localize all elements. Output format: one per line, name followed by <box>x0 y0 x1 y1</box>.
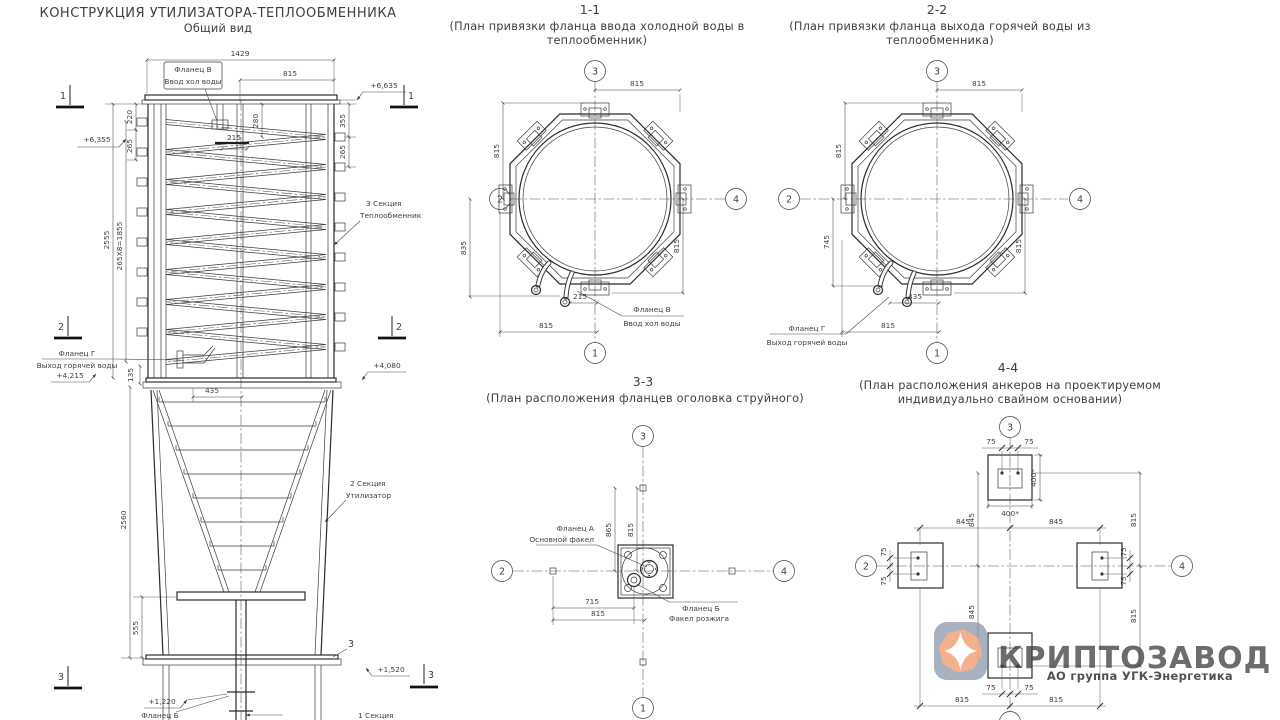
s33-sub1: (План расположения фланцев оголовка стру… <box>486 392 804 405</box>
s22-bubble-1: 1 <box>934 349 940 360</box>
s11-dim-rl: 815 <box>672 239 681 253</box>
s44-d75-t2: 75 <box>1024 437 1034 446</box>
s33-bubble-4: 4 <box>781 567 787 578</box>
s33-title: 3-3 <box>633 374 653 389</box>
s33-bubble-2: 2 <box>499 567 505 578</box>
s33-flange-a-desc: Основной факел <box>529 535 594 544</box>
s44-bubble-3: 3 <box>1007 423 1013 434</box>
dim-135: 135 <box>126 368 135 382</box>
s11-dim-bot: 815 <box>539 321 553 330</box>
logo-star-icon <box>934 622 987 680</box>
sec2-desc: Утилизатор <box>346 491 391 500</box>
dim-815-top: 815 <box>283 69 297 78</box>
page-background <box>0 0 1280 720</box>
dim-265-left: 265 <box>125 139 134 153</box>
s22-sub1: (План привязки фланца выхода горячей вод… <box>789 20 1090 33</box>
drawing-title: КОНСТРУКЦИЯ УТИЛИЗАТОРА-ТЕПЛООБМЕННИКА <box>39 6 396 21</box>
dim-1429: 1429 <box>231 49 250 58</box>
s33-flange-b: Фланец Б <box>682 604 719 613</box>
s44-d400-h: 400* <box>1001 509 1019 518</box>
s33-bubble-1: 1 <box>640 704 646 715</box>
dim-280: 280 <box>251 114 260 128</box>
s44-sub1: (План расположения анкеров на проектируе… <box>859 379 1161 392</box>
s33-dim-865: 865 <box>604 523 613 537</box>
s44-d75-l1: 75 <box>879 547 888 557</box>
sec3-desc: Теплообмен​ник <box>359 211 422 220</box>
s22-dim-off: 435 <box>908 292 922 301</box>
s22-title: 2-2 <box>927 2 947 17</box>
sec2-label: 2 Секция <box>350 479 386 488</box>
flange-g-name: Фланец Г <box>59 349 96 358</box>
s22-bubble-4: 4 <box>1077 195 1083 206</box>
s44-d75-r2: 75 <box>1119 576 1128 586</box>
s33-bubble-3: 3 <box>640 432 646 443</box>
s44-d845-v2: 845 <box>967 605 976 619</box>
s11-dim-off: 215 <box>573 292 587 301</box>
s44-sub2: индивидуально свайном основании) <box>898 393 1123 406</box>
s33-flange-b-desc: Факел розжига <box>669 614 729 623</box>
sec1-label: 1 Секция <box>358 711 394 720</box>
s11-dim-ll: 835 <box>459 241 468 255</box>
s11-dim-lu: 815 <box>492 144 501 158</box>
s44-bubble-2: 2 <box>863 562 869 573</box>
s11-bubble-2: 2 <box>497 195 503 206</box>
elev-1520: +1,520 <box>377 665 405 674</box>
dim-2555: 2555 <box>102 230 111 249</box>
cut-1-left: 1 <box>60 91 66 102</box>
dim-265-right: 265 <box>338 145 347 159</box>
s22-dim-rl: 815 <box>1014 239 1023 253</box>
drawing-subtitle: Общий вид <box>184 22 252 35</box>
s44-d75-t1: 75 <box>986 437 996 446</box>
s11-flange-desc: Ввод хол воды <box>623 319 680 328</box>
s44-d815-v2: 815 <box>1129 609 1138 623</box>
s33-dim-815h: 815 <box>591 609 605 618</box>
s44-d815-v1: 815 <box>1129 513 1138 527</box>
s22-dim-top: 815 <box>972 79 986 88</box>
s22-dim-lu: 815 <box>834 144 843 158</box>
s44-d845-h2: 845 <box>1049 517 1063 526</box>
flange-v-desc: Ввод хол воды <box>164 77 221 86</box>
s44-d75-l2: 75 <box>879 576 888 586</box>
s44-d815-b1: 815 <box>955 695 969 704</box>
s44-bubble-4: 4 <box>1179 562 1185 573</box>
dim-1855: 265X8=1855 <box>115 221 124 270</box>
s11-sub1: (План привязки фланца ввода холодной вод… <box>450 20 745 33</box>
cut-3-left: 3 <box>58 672 64 683</box>
s44-d75-r1: 75 <box>1119 547 1128 557</box>
s33-dim-815v: 815 <box>626 523 635 537</box>
elev-4080: +4,080 <box>373 361 401 370</box>
flange-g-desc: Выход горячей воды <box>37 361 118 370</box>
dim-2560: 2560 <box>119 510 128 529</box>
cut-2-left: 2 <box>58 322 64 333</box>
cut-1-right: 1 <box>408 91 414 102</box>
dim-555: 555 <box>131 621 140 635</box>
s22-bubble-2: 2 <box>786 195 792 206</box>
callout-3: 3 <box>348 639 354 650</box>
s22-sub2: теплообменника) <box>886 34 994 47</box>
drawing-canvas: КОНСТРУКЦИЯ УТИЛИЗАТОРА-ТЕПЛООБМЕННИКА О… <box>0 0 1280 720</box>
dim-355: 355 <box>338 114 347 128</box>
s44-d75-b2: 75 <box>1024 683 1034 692</box>
flange-v-name: Фланец В <box>174 65 211 74</box>
s33-flange-a: Фланец А <box>557 524 594 533</box>
s22-dim-ll: 745 <box>822 235 831 249</box>
s44-d815-b2: 815 <box>1049 695 1063 704</box>
s22-flange-name: Фланец Г <box>789 324 826 333</box>
elev-4215: +4,215 <box>56 371 84 380</box>
s22-bubble-3: 3 <box>934 67 940 78</box>
cut-2-right: 2 <box>396 322 402 333</box>
flange-b-label: Фланец Б <box>141 711 178 720</box>
logo-tagline: АО группа УГК-Энергетика <box>1047 669 1233 683</box>
s11-title: 1-1 <box>580 2 600 17</box>
elev-6355: +6,355 <box>83 135 111 144</box>
s11-bubble-3: 3 <box>592 67 598 78</box>
elev-6635: +6,635 <box>370 81 398 90</box>
s11-bubble-1: 1 <box>592 349 598 360</box>
elev-1220: +1,220 <box>148 697 176 706</box>
dim-215: 215 <box>227 133 241 142</box>
s11-dim-top: 815 <box>630 79 644 88</box>
s44-d845-v1: 845 <box>967 513 976 527</box>
s11-sub2: теплообменник) <box>547 34 648 47</box>
sec3-label: 3 Секция <box>366 199 402 208</box>
s22-dim-bot: 815 <box>881 321 895 330</box>
s44-title: 4-4 <box>998 360 1018 375</box>
dim-220: 220 <box>125 110 134 124</box>
s11-bubble-4: 4 <box>733 195 739 206</box>
s11-flange-name: Фланец В <box>633 305 670 314</box>
s44-d75-b1: 75 <box>986 683 996 692</box>
cut-3-right: 3 <box>428 670 434 681</box>
dim-435: 435 <box>205 386 219 395</box>
s44-d400-v: 400* <box>1029 469 1038 487</box>
s33-dim-715: 715 <box>585 597 599 606</box>
s22-flange-desc: Выход горячей воды <box>767 338 848 347</box>
